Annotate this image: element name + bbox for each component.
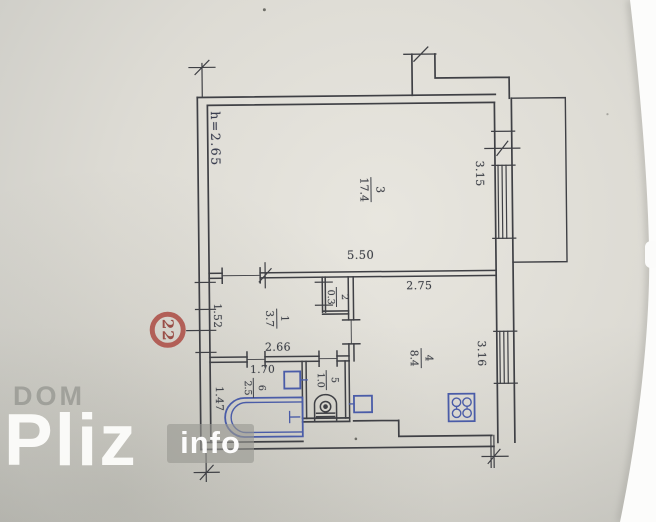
watermark-edge-fragment xyxy=(645,241,656,268)
floorplan-photo: h=2.65 5.50 3.15 2.75 3.16 2.66 1.52 1.7… xyxy=(0,0,656,522)
watermark-brand-badge: info xyxy=(167,424,254,463)
watermark-brand-main: Pliz xyxy=(4,399,138,482)
